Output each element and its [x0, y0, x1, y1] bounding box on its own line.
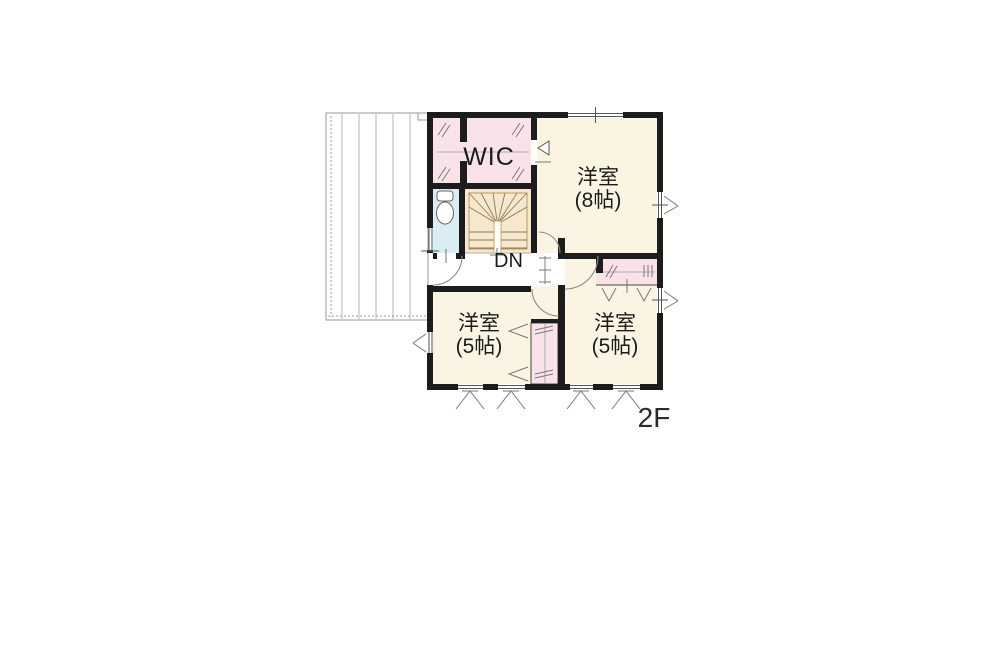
stairs-down-label: DN [494, 250, 538, 273]
bedroom5-left-label: 洋室 (5帖) [429, 312, 529, 358]
wic-label: WIC [439, 143, 539, 172]
bedroom5-left-size: (5帖) [429, 335, 529, 358]
bedroom5-right-name: 洋室 [565, 312, 665, 335]
bedroom8-size: (8帖) [548, 189, 648, 212]
floorplan-canvas: WIC 洋室 (8帖) 洋室 (5帖) 洋室 (5帖) DN 2F [0, 0, 1005, 670]
bedroom5-left-name: 洋室 [429, 312, 529, 335]
bedroom5-right-size: (5帖) [565, 335, 665, 358]
floor-label: 2F [629, 402, 679, 434]
balcony [326, 113, 428, 320]
bedroom8-label: 洋室 (8帖) [548, 166, 648, 212]
toilet-icon [437, 191, 454, 224]
door-balcony [433, 256, 462, 285]
bedroom8-name: 洋室 [548, 166, 648, 189]
bedroom5-right-label: 洋室 (5帖) [565, 312, 665, 358]
